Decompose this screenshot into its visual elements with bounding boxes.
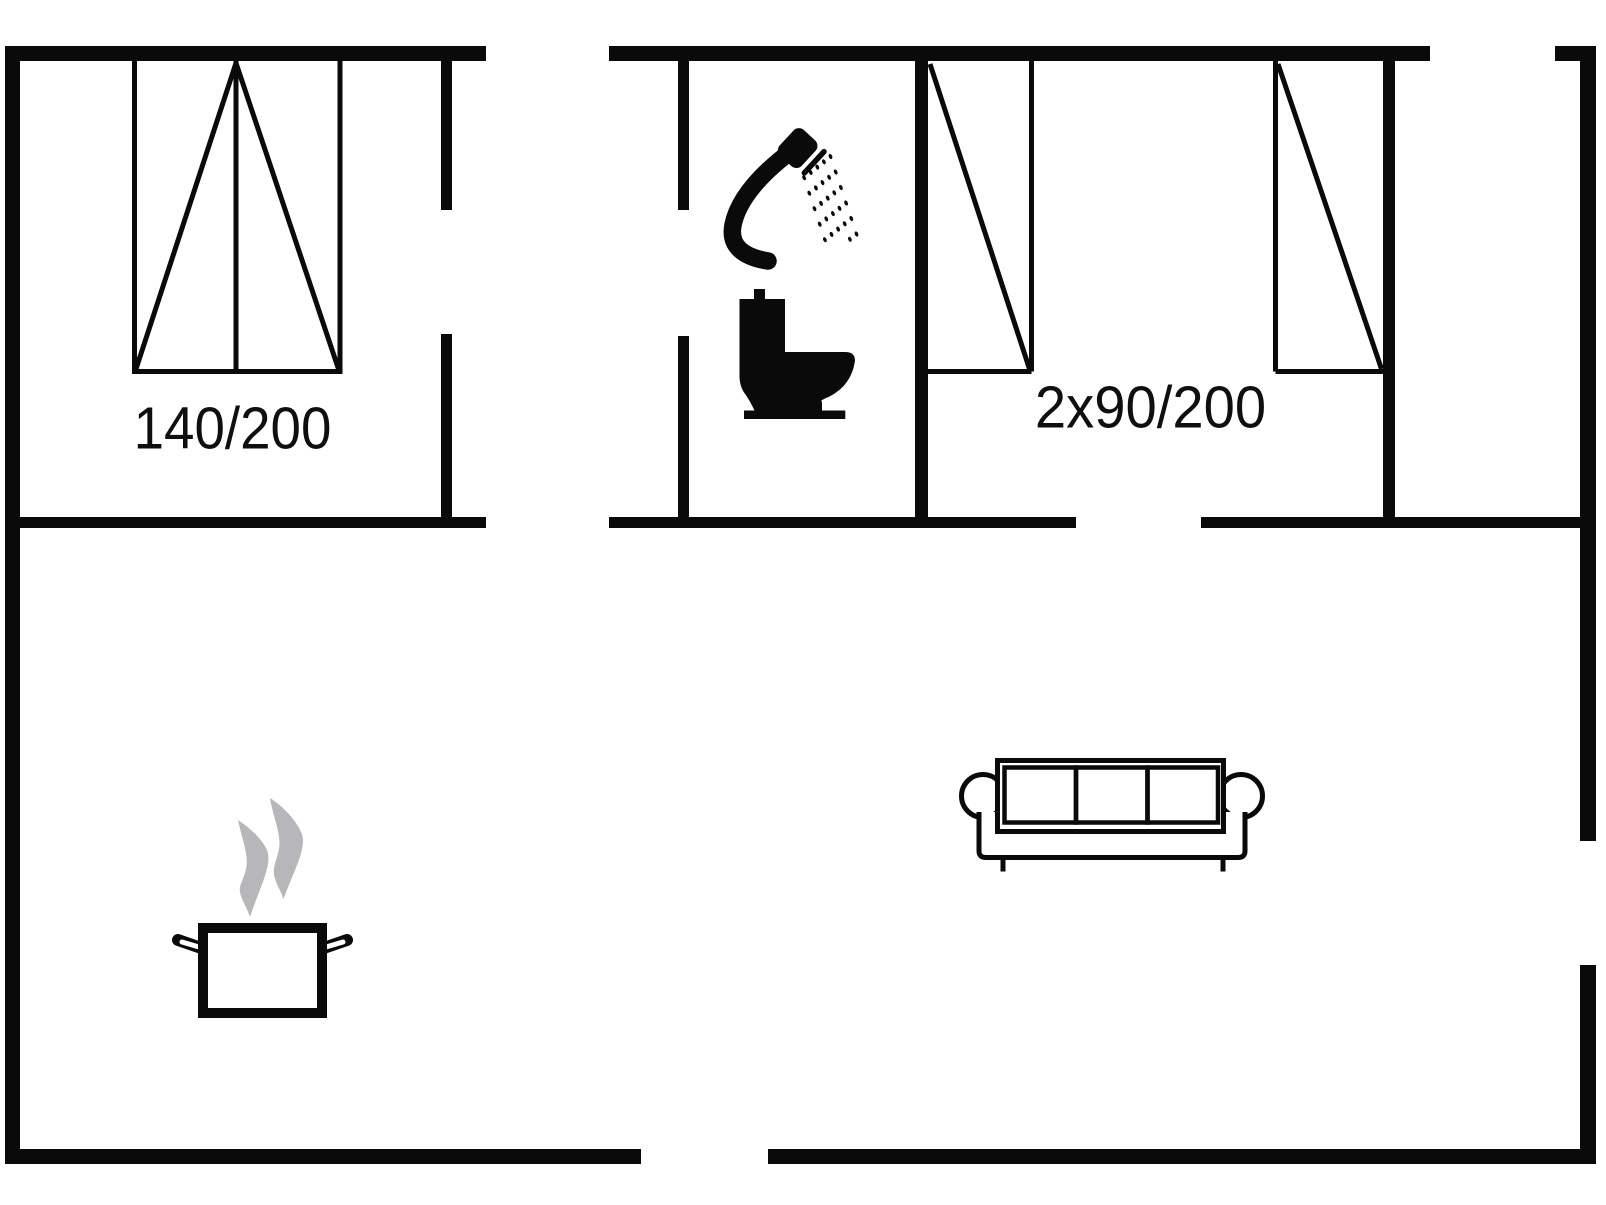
svg-text:140/200: 140/200 — [134, 395, 332, 462]
svg-text:2x90/200: 2x90/200 — [1035, 375, 1266, 441]
